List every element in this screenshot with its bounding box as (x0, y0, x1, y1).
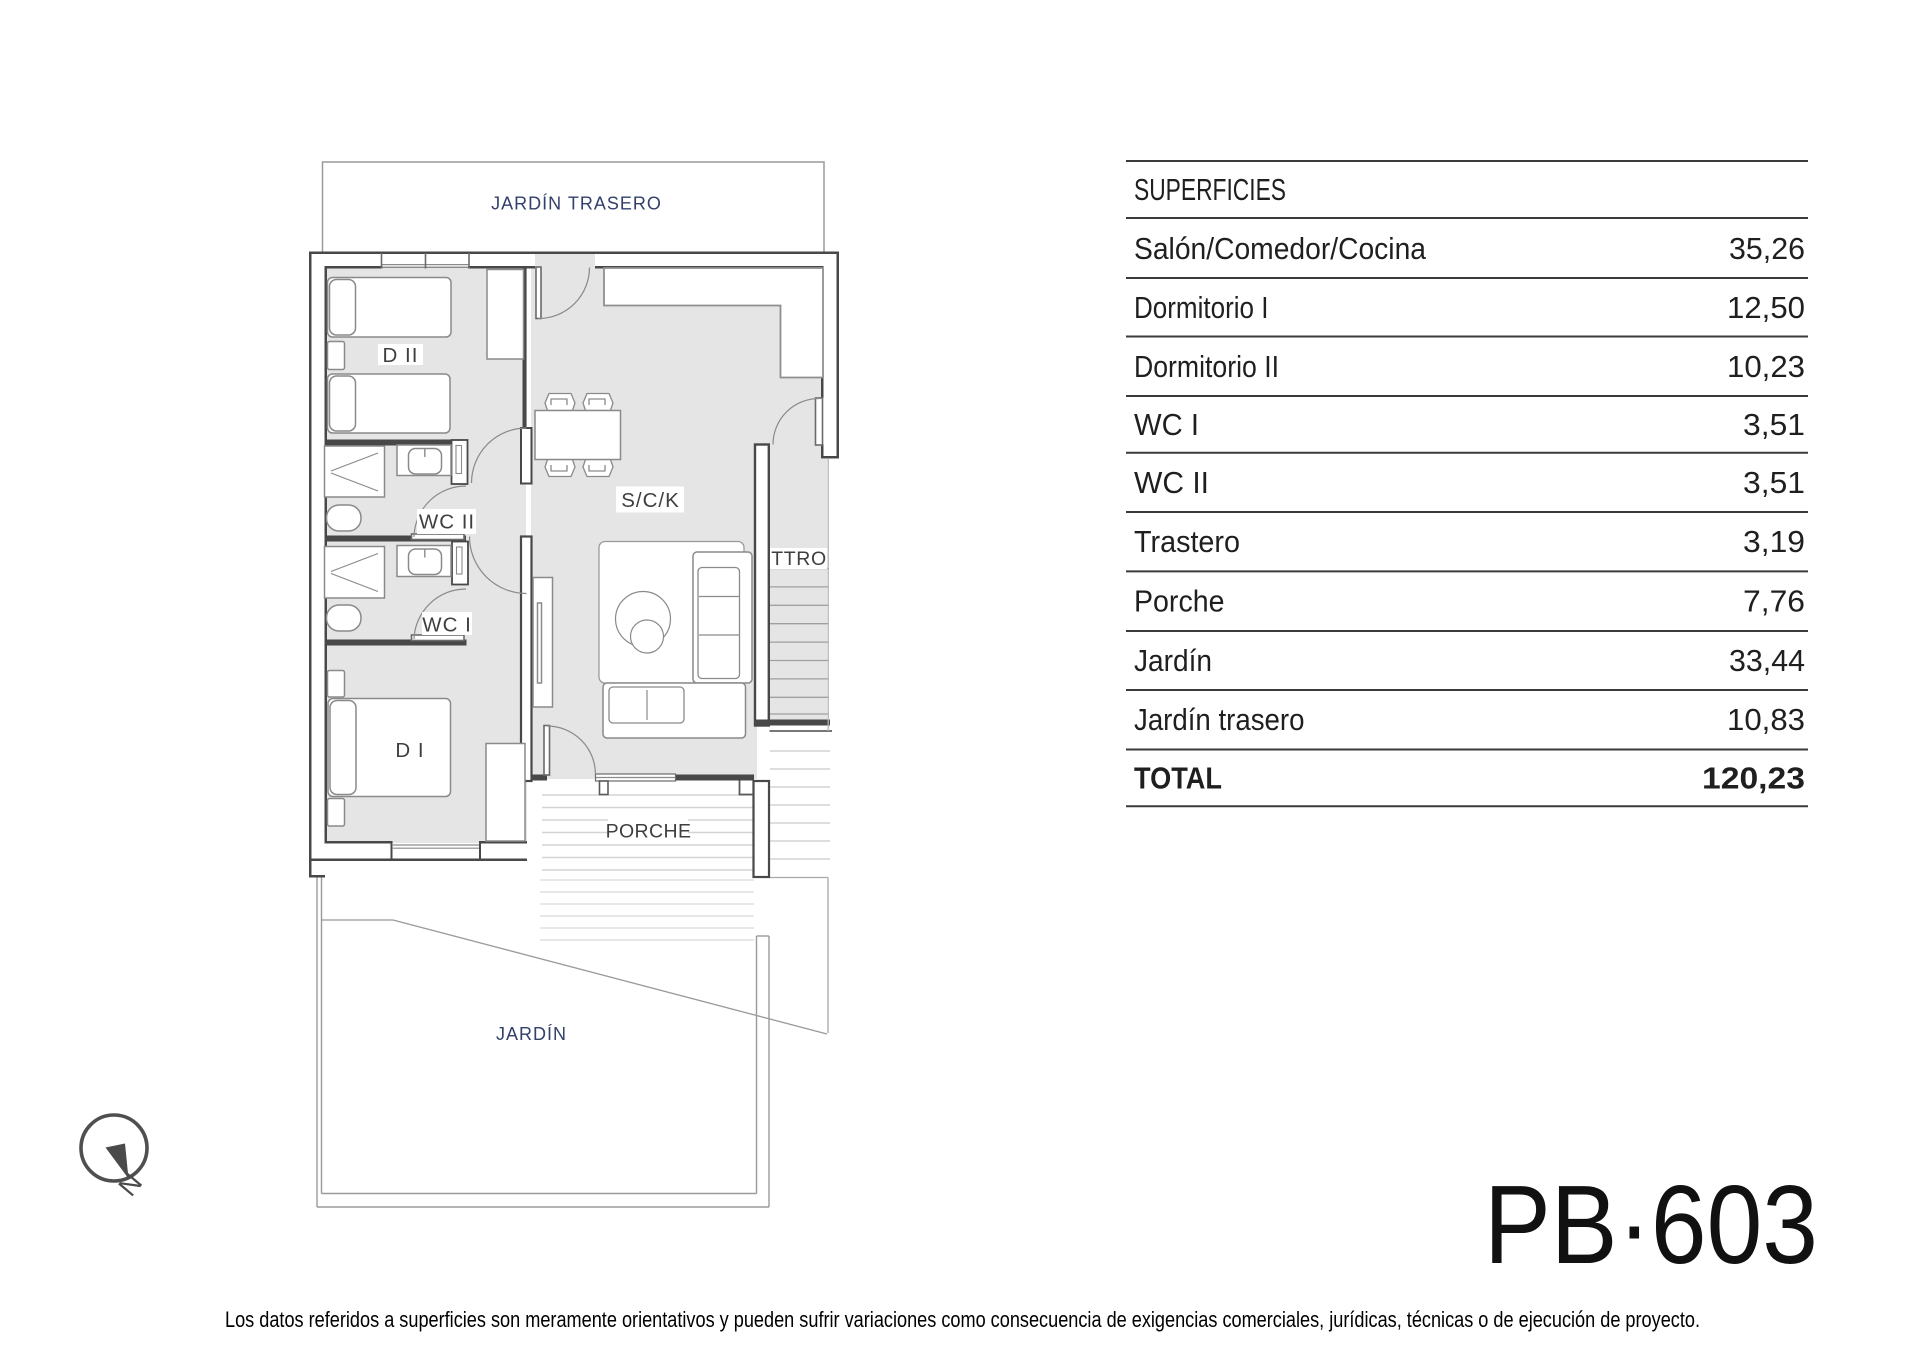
svg-text:3,51: 3,51 (1743, 465, 1805, 500)
svg-text:TOTAL: TOTAL (1134, 761, 1222, 796)
svg-text:JARDÍN: JARDÍN (496, 1024, 567, 1044)
svg-text:Jardín trasero: Jardín trasero (1134, 702, 1305, 737)
svg-text:Porche: Porche (1134, 584, 1225, 619)
svg-text:WC II: WC II (1134, 465, 1209, 500)
svg-text:PORCHE: PORCHE (606, 821, 692, 843)
svg-text:SUPERFICIES: SUPERFICIES (1134, 172, 1286, 207)
svg-text:3,51: 3,51 (1743, 407, 1805, 442)
svg-text:D II: D II (383, 344, 419, 367)
svg-text:12,50: 12,50 (1727, 290, 1805, 325)
svg-text:35,26: 35,26 (1729, 231, 1805, 266)
svg-text:WC I: WC I (422, 614, 472, 637)
svg-text:S/C/K: S/C/K (621, 489, 680, 512)
svg-text:WC II: WC II (419, 511, 475, 534)
svg-text:WC I: WC I (1134, 407, 1199, 442)
svg-text:Dormitorio I: Dormitorio I (1134, 290, 1269, 325)
svg-text:TTRO: TTRO (771, 548, 826, 570)
svg-text:33,44: 33,44 (1729, 643, 1805, 678)
svg-text:PB·603: PB·603 (1484, 1163, 1818, 1287)
svg-text:D I: D I (395, 739, 424, 762)
svg-text:120,23: 120,23 (1702, 761, 1805, 796)
svg-text:JARDÍN TRASERO: JARDÍN TRASERO (491, 194, 662, 214)
svg-text:Trastero: Trastero (1134, 524, 1240, 559)
svg-text:10,83: 10,83 (1727, 702, 1805, 737)
svg-text:Salón/Comedor/Cocina: Salón/Comedor/Cocina (1134, 231, 1427, 266)
svg-text:3,19: 3,19 (1743, 524, 1805, 559)
svg-text:N: N (113, 1168, 149, 1202)
svg-text:Jardín: Jardín (1134, 643, 1212, 678)
svg-text:Dormitorio II: Dormitorio II (1134, 349, 1279, 384)
svg-text:10,23: 10,23 (1727, 349, 1805, 384)
svg-text:Los datos referidos a superfic: Los datos referidos a superficies son me… (225, 1307, 1700, 1332)
svg-text:7,76: 7,76 (1743, 584, 1805, 619)
